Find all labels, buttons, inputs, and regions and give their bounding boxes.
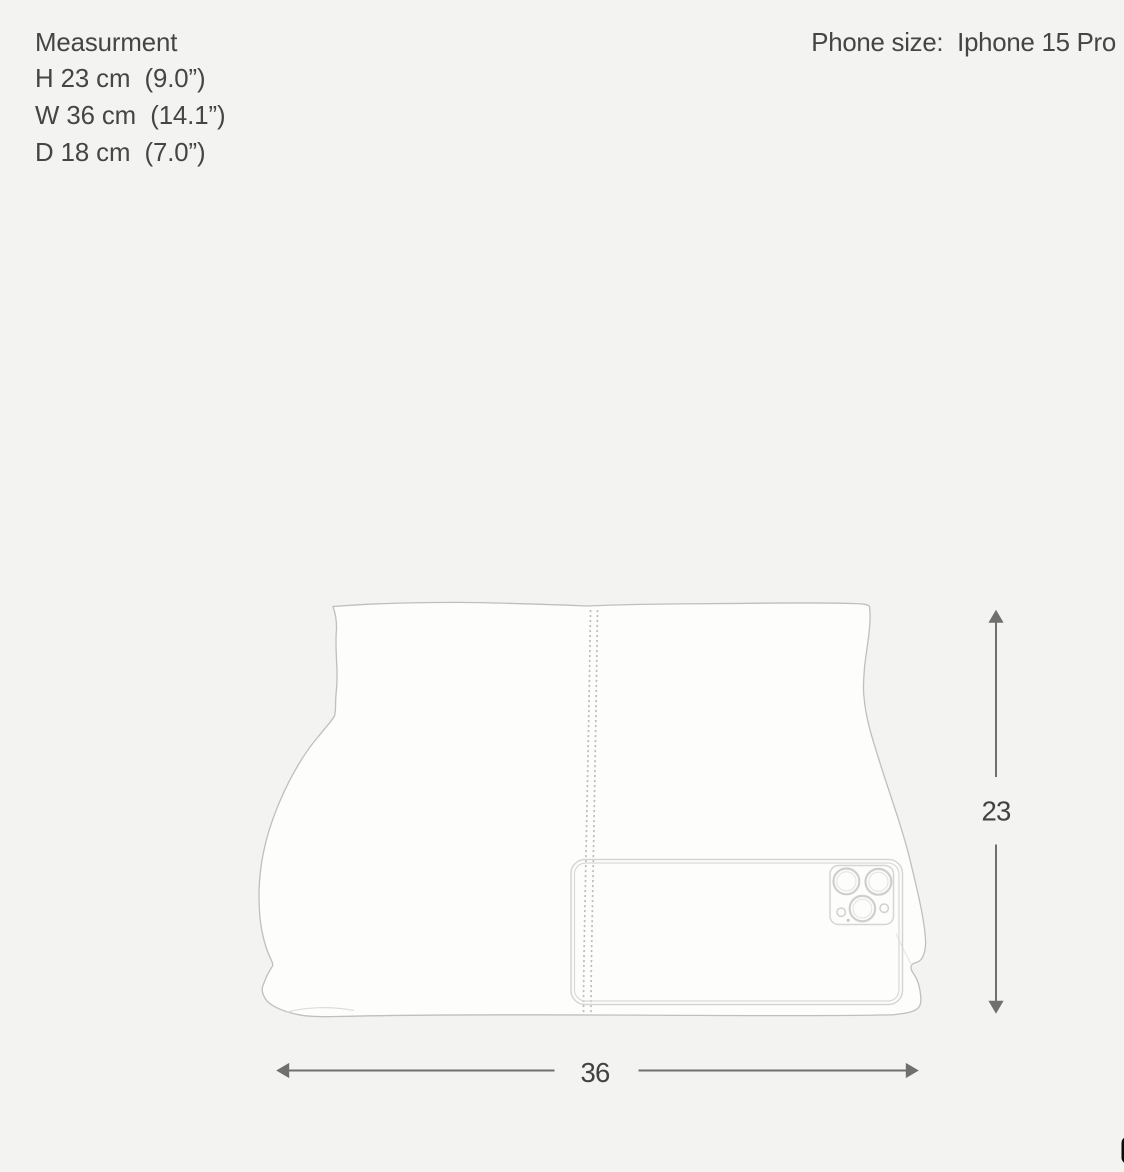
svg-text:23: 23: [982, 796, 1011, 827]
svg-text:36: 36: [581, 1057, 610, 1088]
